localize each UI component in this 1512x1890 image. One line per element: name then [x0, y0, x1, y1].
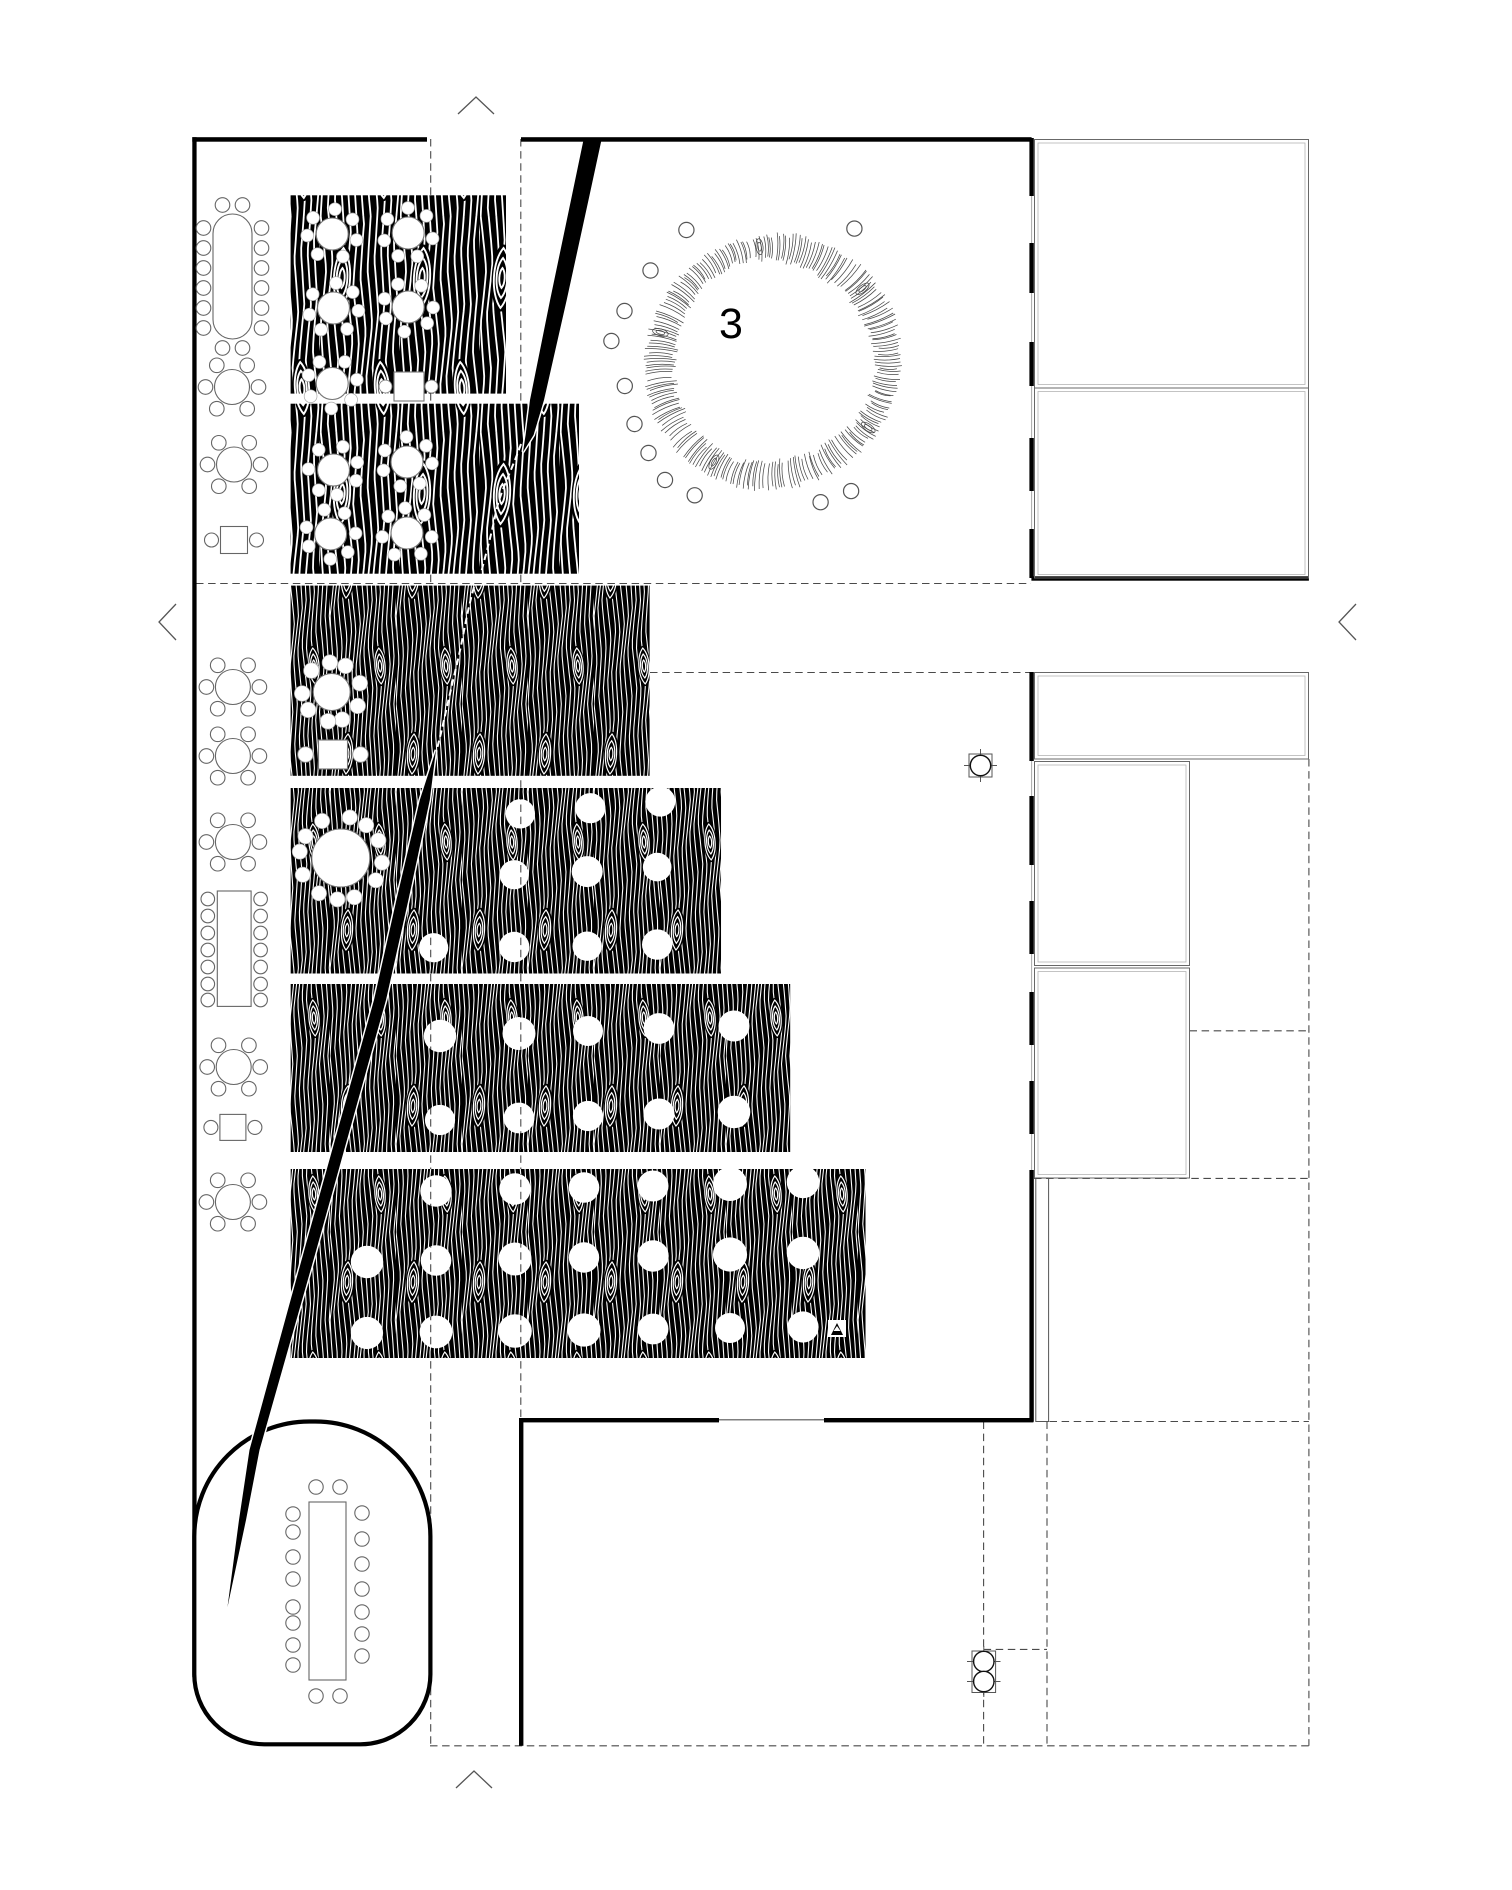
svg-text:3: 3: [719, 300, 743, 348]
